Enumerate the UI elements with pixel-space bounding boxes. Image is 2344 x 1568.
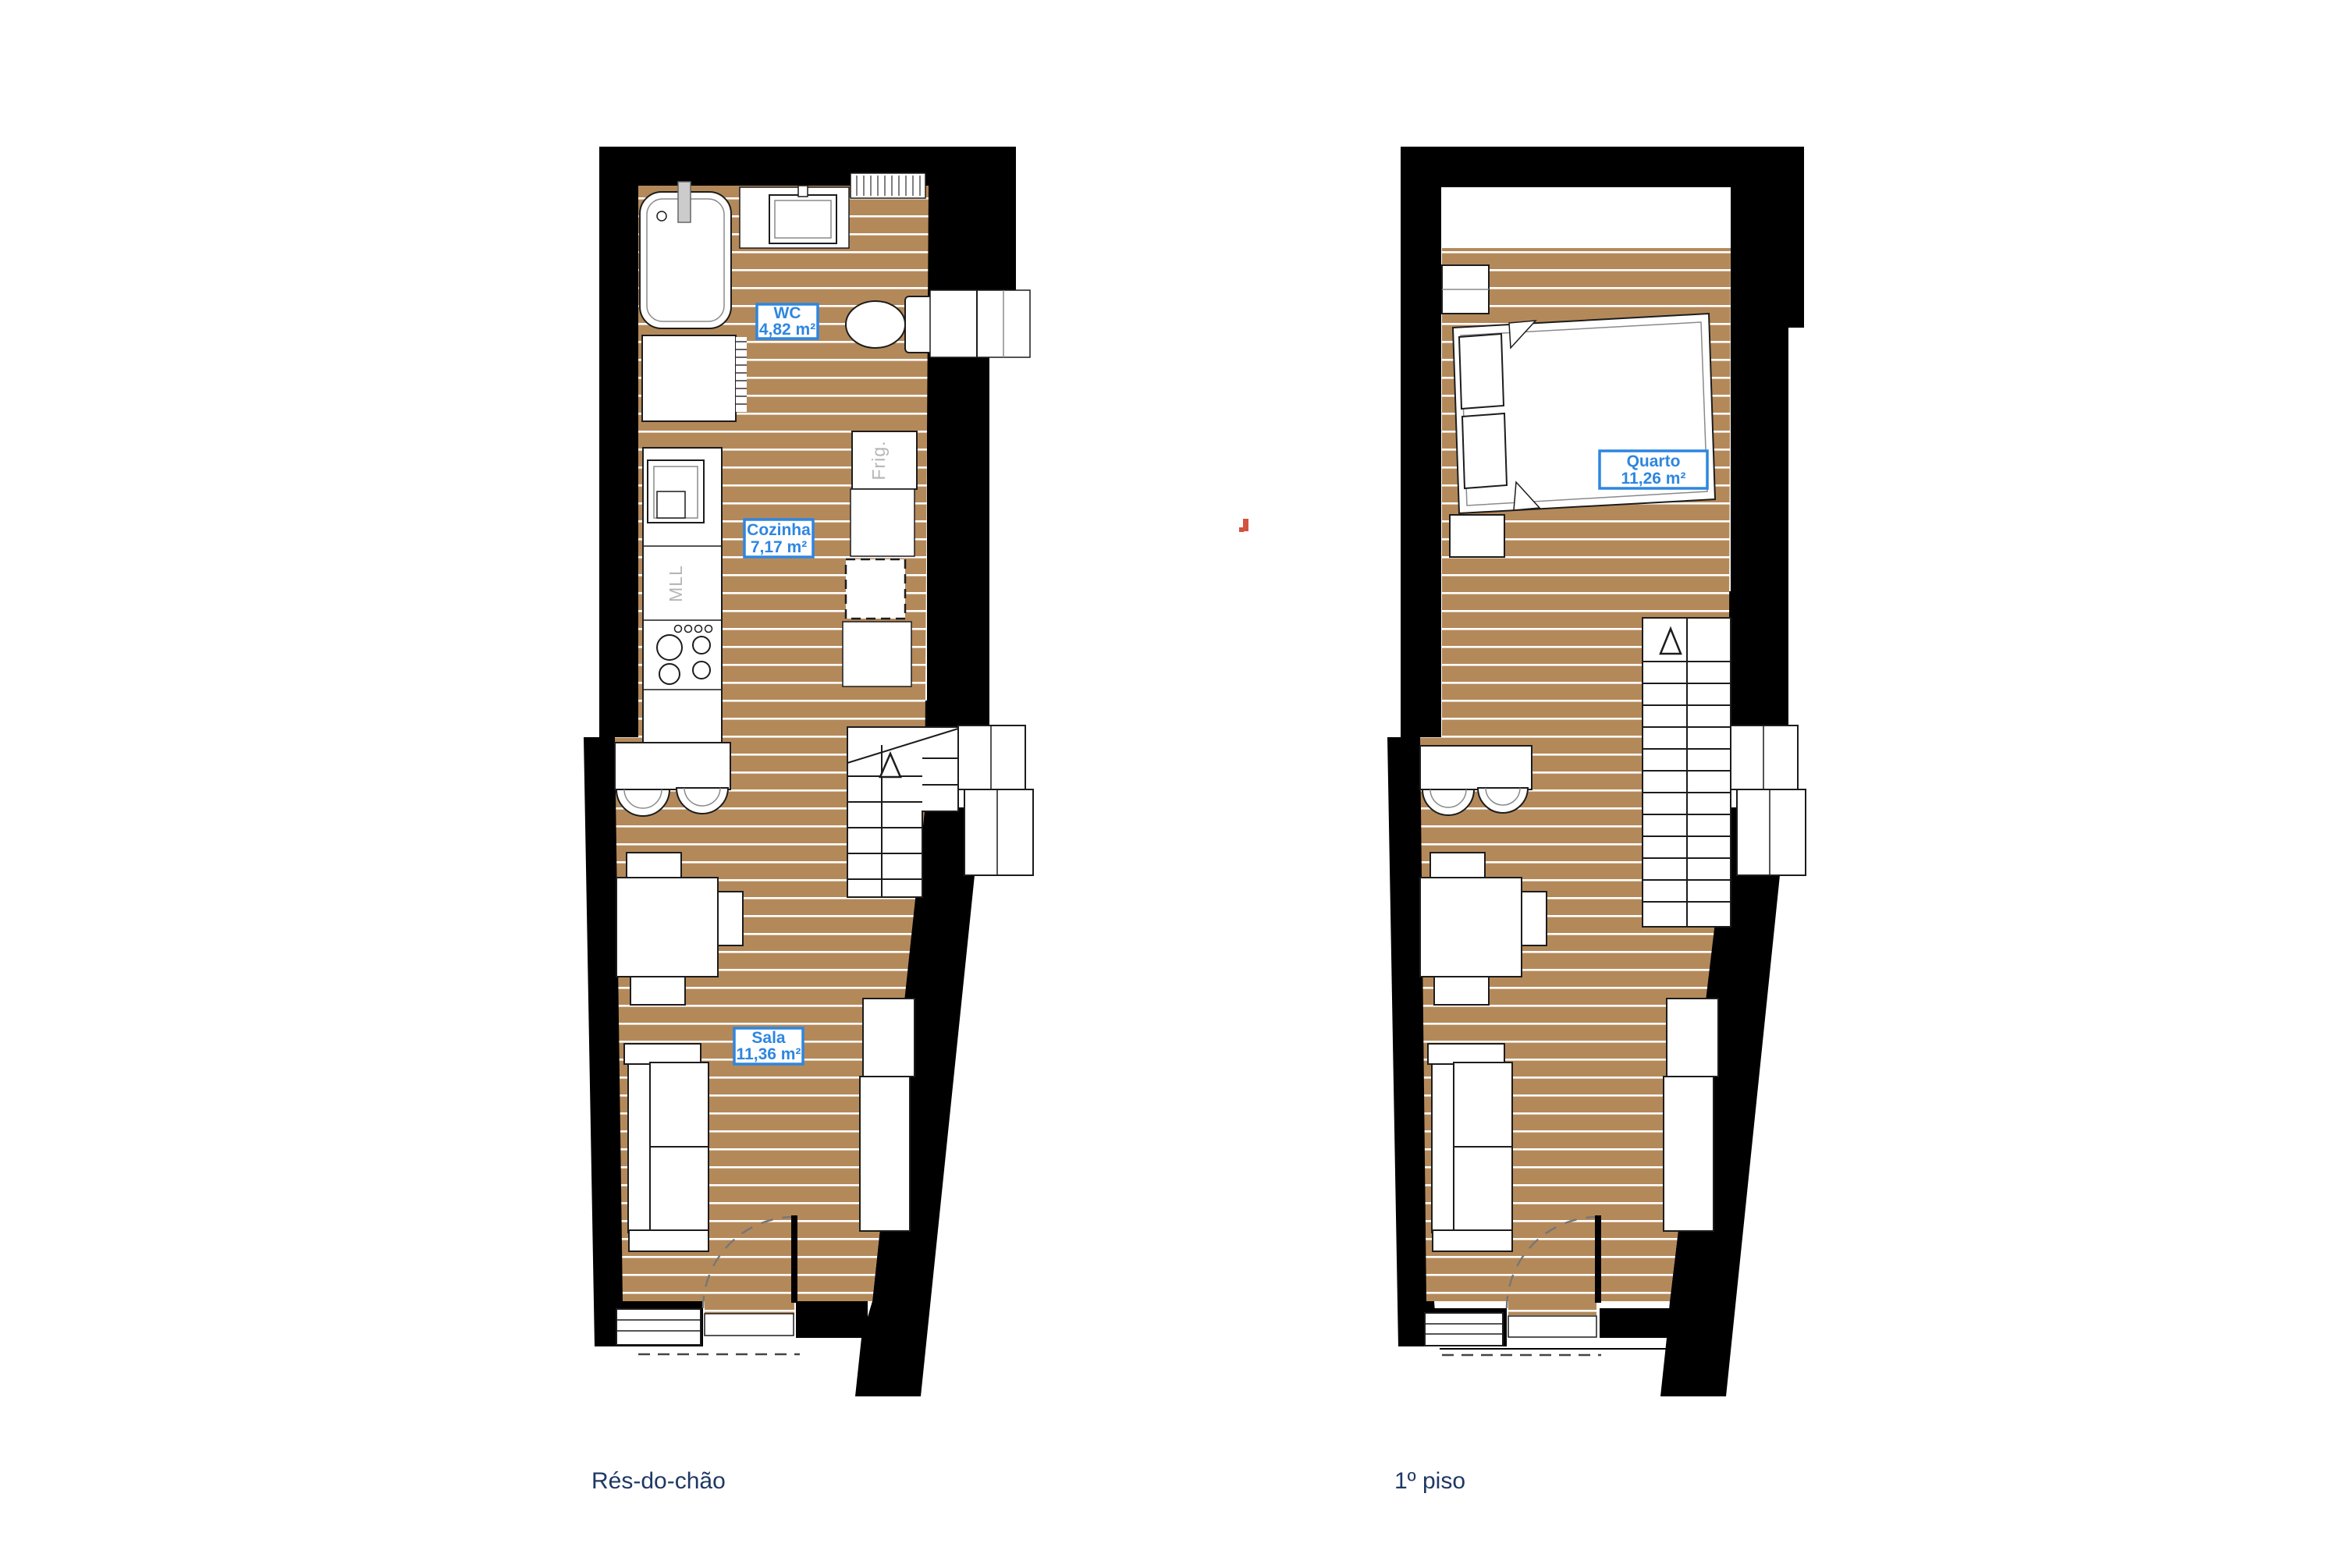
kitchen-counter-left: MLL bbox=[643, 448, 722, 743]
room-area: 4,82 m² bbox=[759, 321, 815, 339]
door-leaf bbox=[791, 1215, 797, 1303]
washer-label: MLL bbox=[666, 565, 686, 602]
stair-landing-box bbox=[1737, 789, 1806, 875]
bathtub bbox=[640, 182, 731, 328]
room-label-quarto: Quarto 11,26 m² bbox=[1600, 451, 1707, 488]
sofa bbox=[624, 1044, 709, 1251]
door-leaf bbox=[1595, 1215, 1601, 1303]
chair bbox=[627, 853, 681, 879]
stair-landing-box bbox=[964, 789, 1033, 875]
chair bbox=[630, 977, 685, 1005]
floor-plans-drawing: MLL Frig. bbox=[0, 0, 2344, 1568]
threshold bbox=[1508, 1316, 1596, 1337]
room-area: 11,26 m² bbox=[1621, 470, 1686, 488]
stray-mark bbox=[1239, 519, 1248, 532]
dining-table bbox=[616, 878, 718, 977]
toilet bbox=[846, 296, 933, 353]
room-name: Sala bbox=[751, 1029, 786, 1047]
dresser bbox=[1442, 265, 1489, 314]
wc-window-niche bbox=[930, 290, 1030, 357]
wardrobe bbox=[1664, 999, 1718, 1231]
floor-plan-sheet: MLL Frig. bbox=[0, 0, 2344, 1568]
nightstand bbox=[1450, 515, 1504, 557]
threshold bbox=[705, 1314, 794, 1336]
chair bbox=[1522, 892, 1547, 945]
bath-faucet bbox=[678, 182, 691, 222]
room-label-sala: Sala 11,36 m² bbox=[734, 1028, 803, 1064]
chair bbox=[1434, 977, 1489, 1005]
fridge-label: Frig. bbox=[868, 441, 889, 481]
kitchen-sink bbox=[648, 460, 704, 523]
ground-floor-plan: MLL Frig. bbox=[584, 147, 1033, 1494]
wardrobe bbox=[860, 999, 915, 1231]
room-name: WC bbox=[774, 304, 801, 322]
room-name: Cozinha bbox=[747, 521, 811, 539]
bathroom-cabinet bbox=[642, 335, 747, 421]
dashed-appliance bbox=[846, 559, 905, 619]
room-label-cozinha: Cozinha 7,17 m² bbox=[744, 520, 813, 557]
room-name: Quarto bbox=[1627, 452, 1681, 470]
ground-floor-caption: Rés-do-chão bbox=[591, 1468, 726, 1494]
stair-landing-box bbox=[1731, 725, 1798, 789]
window-band bbox=[851, 173, 925, 198]
chair bbox=[1430, 853, 1485, 879]
first-floor-plan: Quarto 11,26 m² 1º piso bbox=[1387, 147, 1806, 1494]
stair-landing-box bbox=[958, 725, 1025, 789]
pillow bbox=[1462, 413, 1507, 488]
washbasin bbox=[740, 186, 849, 248]
room-area: 11,36 m² bbox=[737, 1045, 801, 1063]
dining-table bbox=[1420, 878, 1522, 977]
chair bbox=[718, 892, 743, 945]
room-area: 7,17 m² bbox=[751, 538, 807, 556]
first-floor-caption: 1º piso bbox=[1394, 1468, 1465, 1494]
sofa bbox=[1428, 1044, 1512, 1251]
pillow bbox=[1459, 334, 1504, 409]
room-label-wc: WC 4,82 m² bbox=[757, 304, 818, 339]
